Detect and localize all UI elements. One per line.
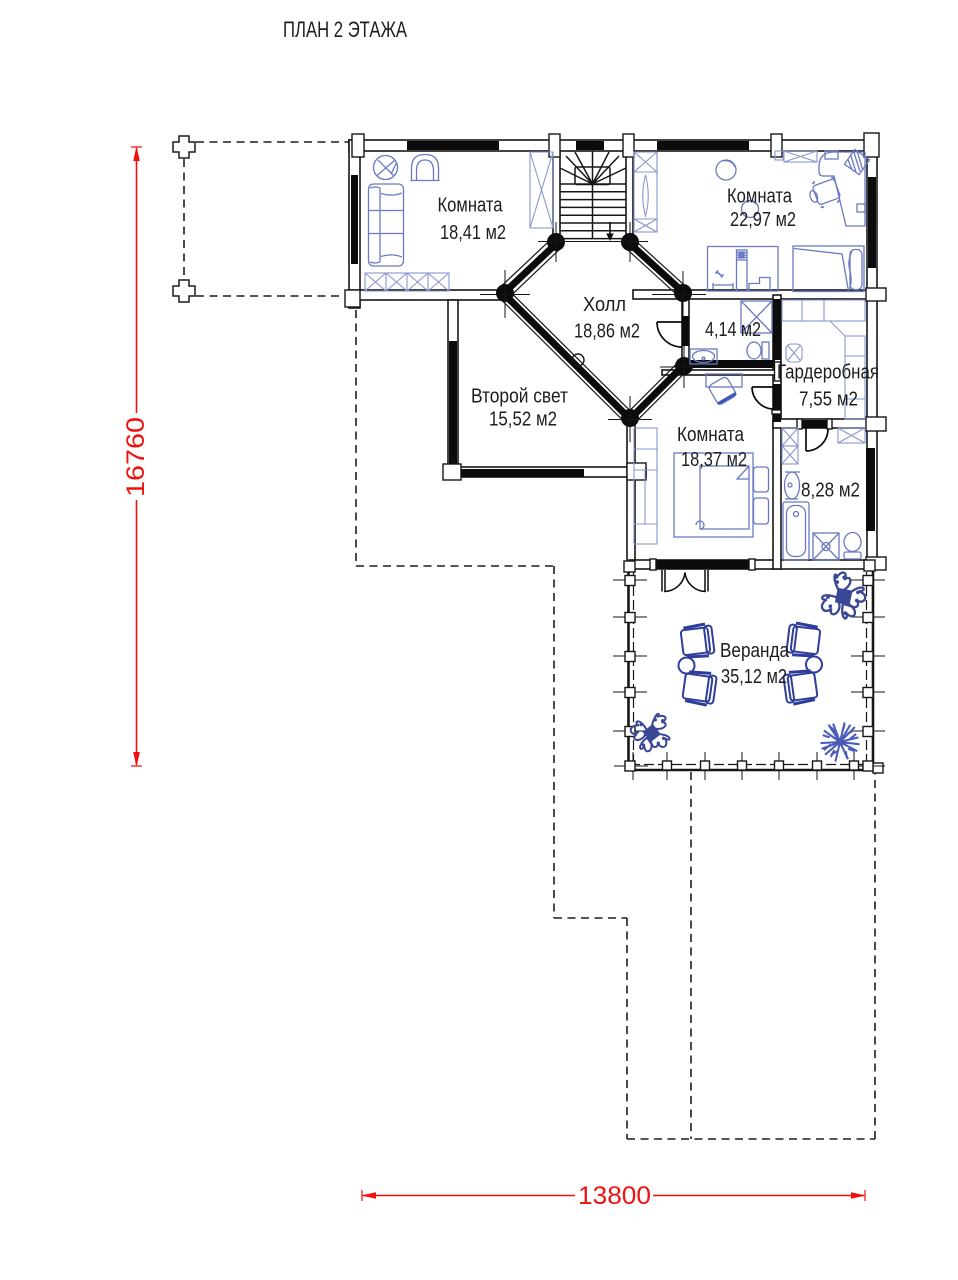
svg-text:Комната: Комната [438,195,504,217]
svg-text:ПЛАН 2 ЭТАЖА: ПЛАН 2 ЭТАЖА [283,17,407,42]
svg-text:16760: 16760 [122,417,150,497]
svg-text:18,41 м2: 18,41 м2 [440,222,506,244]
svg-text:Холл: Холл [583,294,626,316]
svg-text:Комната: Комната [677,424,745,446]
svg-text:35,12 м2: 35,12 м2 [721,666,787,688]
svg-text:18,37 м2: 18,37 м2 [681,449,747,471]
svg-text:22,97 м2: 22,97 м2 [730,209,796,231]
svg-text:18,86 м2: 18,86 м2 [574,321,640,343]
svg-text:Веранда: Веранда [720,640,790,662]
svg-text:15,52 м2: 15,52 м2 [489,409,557,431]
svg-text:Гардеробная: Гардеробная [777,362,879,384]
svg-text:7,55 м2: 7,55 м2 [799,389,858,411]
svg-text:Второй свет: Второй свет [471,386,568,408]
svg-text:8,28 м2: 8,28 м2 [801,480,860,502]
svg-text:Комната: Комната [727,186,793,208]
svg-text:13800: 13800 [578,1182,651,1210]
svg-text:4,14 м2: 4,14 м2 [705,319,761,341]
